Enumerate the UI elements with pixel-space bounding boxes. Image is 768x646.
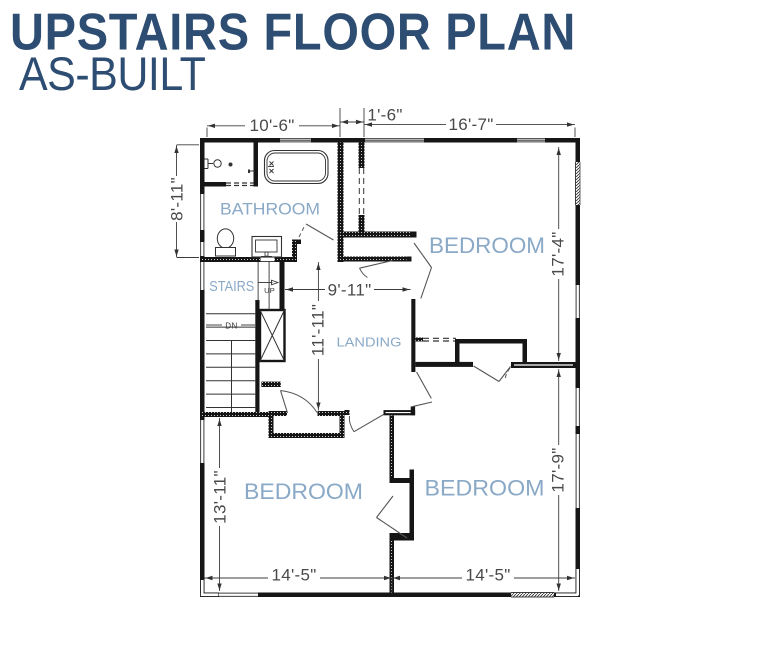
svg-text:UP: UP: [264, 286, 275, 295]
svg-text:10'-6": 10'-6": [249, 116, 294, 135]
svg-text:1'-6": 1'-6": [367, 106, 402, 125]
svg-text:BEDROOM: BEDROOM: [425, 475, 545, 500]
svg-text:BEDROOM: BEDROOM: [244, 479, 363, 504]
svg-text:11'-11": 11'-11": [309, 304, 328, 356]
svg-text:14'-5": 14'-5": [465, 566, 510, 585]
svg-text:17'-4": 17'-4": [549, 231, 568, 276]
svg-text:8'-11": 8'-11": [167, 177, 186, 221]
svg-text:16'-7": 16'-7": [448, 115, 493, 134]
svg-text:13'-11": 13'-11": [210, 470, 229, 524]
svg-text:LANDING: LANDING: [337, 335, 402, 349]
svg-text:9'-11": 9'-11": [328, 281, 372, 300]
svg-text:14'-5": 14'-5": [271, 566, 316, 585]
svg-text:BATHROOM: BATHROOM: [220, 201, 320, 219]
svg-text:BEDROOM: BEDROOM: [429, 233, 545, 258]
svg-text:STAIRS: STAIRS: [209, 278, 254, 295]
svg-text:DN: DN: [225, 322, 238, 331]
svg-text:17'-9": 17'-9": [549, 447, 568, 492]
